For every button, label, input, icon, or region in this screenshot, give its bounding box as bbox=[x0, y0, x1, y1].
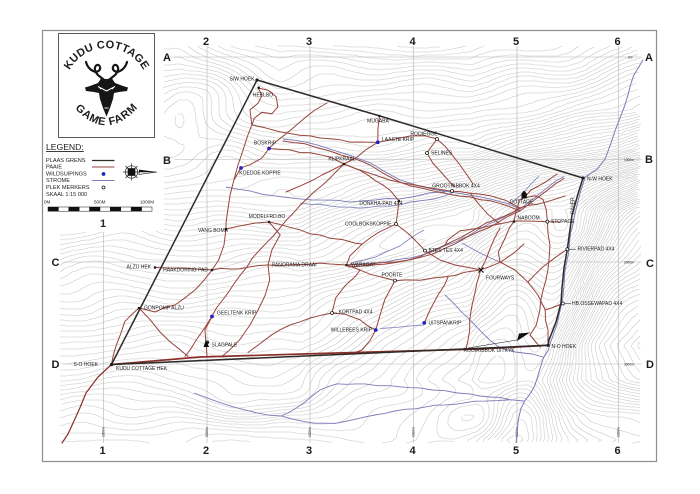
svg-text:6: 6 bbox=[614, 36, 620, 48]
svg-text:B: B bbox=[163, 155, 171, 167]
svg-text:C: C bbox=[646, 258, 654, 270]
svg-text:1: 1 bbox=[100, 218, 106, 230]
svg-text:KOEDOE KOPPIE: KOEDOE KOPPIE bbox=[239, 171, 281, 177]
svg-text:1: 1 bbox=[99, 445, 105, 457]
svg-text:B: B bbox=[645, 154, 653, 166]
svg-text:3000m: 3000m bbox=[624, 363, 634, 367]
svg-text:VANG BOMA: VANG BOMA bbox=[198, 228, 229, 234]
svg-text:D: D bbox=[52, 359, 60, 371]
svg-text:KORTPAD 4X4: KORTPAD 4X4 bbox=[339, 310, 373, 316]
svg-text:2: 2 bbox=[203, 36, 209, 48]
svg-text:1000m: 1000m bbox=[624, 158, 634, 162]
svg-text:D: D bbox=[646, 359, 654, 371]
svg-text:PLEK MERKERS: PLEK MERKERS bbox=[46, 185, 90, 191]
svg-text:0m: 0m bbox=[628, 56, 633, 60]
svg-text:NABOOM: NABOOM bbox=[518, 216, 540, 222]
svg-text:RIVIERPAD 4X4: RIVIERPAD 4X4 bbox=[578, 247, 615, 253]
svg-text:KUDU COTTAGE HEK: KUDU COTTAGE HEK bbox=[116, 366, 168, 372]
svg-text:ROOIEGGE: ROOIEGGE bbox=[410, 132, 438, 138]
svg-text:ALZU HEK: ALZU HEK bbox=[127, 265, 152, 271]
svg-text:1000m: 1000m bbox=[308, 427, 312, 437]
svg-text:3: 3 bbox=[306, 445, 312, 457]
svg-text:PANORAMA DRAAI: PANORAMA DRAAI bbox=[272, 263, 317, 269]
svg-text:1000m: 1000m bbox=[102, 427, 106, 437]
svg-text:A: A bbox=[645, 52, 653, 64]
svg-text:DONKHA-PAD 4X4: DONKHA-PAD 4X4 bbox=[359, 201, 402, 207]
svg-text:S/W HOEK: S/W HOEK bbox=[229, 77, 255, 83]
svg-text:5: 5 bbox=[513, 445, 519, 457]
svg-text:ROOIRIBBOK UITKYK: ROOIRIBBOK UITKYK bbox=[463, 348, 515, 354]
svg-text:KLIPKRAAL: KLIPKRAAL bbox=[328, 157, 355, 163]
svg-text:WILLEBEES KRIP: WILLEBEES KRIP bbox=[331, 328, 373, 334]
svg-text:4: 4 bbox=[409, 36, 416, 48]
svg-text:5: 5 bbox=[513, 36, 519, 48]
svg-text:BOSKRIP: BOSKRIP bbox=[254, 141, 277, 147]
svg-text:UITSPANKRIP: UITSPANKRIP bbox=[429, 321, 463, 327]
svg-text:4: 4 bbox=[409, 445, 416, 457]
svg-text:0M: 0M bbox=[44, 200, 51, 205]
svg-text:2: 2 bbox=[203, 445, 209, 457]
svg-text:RIVIER: RIVIER bbox=[571, 197, 577, 214]
svg-text:BTES TES 4X4: BTES TES 4X4 bbox=[429, 248, 464, 254]
svg-text:C: C bbox=[52, 257, 60, 269]
svg-text:1000M: 1000M bbox=[140, 200, 154, 205]
svg-text:FOURWAYS: FOURWAYS bbox=[486, 276, 515, 282]
svg-text:COTTAGE: COTTAGE bbox=[510, 200, 534, 206]
svg-text:2000m: 2000m bbox=[624, 261, 634, 265]
svg-text:MODELFRD.BO: MODELFRD.BO bbox=[249, 214, 286, 220]
svg-text:WARAGAT: WARAGAT bbox=[351, 263, 376, 269]
svg-text:500M: 500M bbox=[94, 200, 106, 205]
svg-text:PAAIE: PAAIE bbox=[46, 165, 62, 171]
svg-text:STOPAGE: STOPAGE bbox=[551, 219, 575, 225]
svg-text:HAAKDORING PAD: HAAKDORING PAD bbox=[163, 268, 208, 274]
svg-text:GONPOMP ALZU: GONPOMP ALZU bbox=[144, 306, 184, 312]
svg-text:SKAAL 1:15 000: SKAAL 1:15 000 bbox=[46, 192, 87, 198]
svg-text:A: A bbox=[163, 52, 171, 64]
svg-text:LAASTE KRIP: LAASTE KRIP bbox=[382, 137, 415, 143]
svg-text:HEELBO: HEELBO bbox=[253, 93, 273, 99]
svg-text:HB.OSSEWAPAD 4X4: HB.OSSEWAPAD 4X4 bbox=[572, 301, 623, 307]
svg-text:POORTE: POORTE bbox=[381, 273, 403, 279]
svg-text:N-O HOEK: N-O HOEK bbox=[552, 344, 577, 350]
svg-text:PLAAS GRENS: PLAAS GRENS bbox=[46, 158, 86, 164]
svg-text:COOLBOKSKOPPIE: COOLBOKSKOPPIE bbox=[345, 222, 392, 228]
svg-text:LEGEND:: LEGEND: bbox=[46, 142, 84, 152]
svg-text:N-W HOEK: N-W HOEK bbox=[587, 177, 613, 183]
svg-text:3: 3 bbox=[306, 36, 312, 48]
svg-text:MUGABA: MUGABA bbox=[367, 119, 389, 125]
svg-text:1000m: 1000m bbox=[205, 427, 209, 437]
svg-text:1000m: 1000m bbox=[412, 427, 416, 437]
svg-text:WILDSUIPINGS: WILDSUIPINGS bbox=[46, 172, 87, 178]
svg-text:GROOTRIBBOK 4X4: GROOTRIBBOK 4X4 bbox=[432, 184, 480, 190]
svg-text:STROME: STROME bbox=[46, 178, 70, 184]
svg-text:S-O HOEK: S-O HOEK bbox=[74, 362, 99, 368]
svg-text:GEELTENK KRIP: GEELTENK KRIP bbox=[217, 311, 257, 317]
svg-text:SELINES: SELINES bbox=[431, 151, 453, 157]
svg-text:1000m: 1000m bbox=[617, 427, 621, 437]
svg-text:SLAGPALE: SLAGPALE bbox=[212, 343, 238, 349]
svg-text:6: 6 bbox=[614, 445, 620, 457]
